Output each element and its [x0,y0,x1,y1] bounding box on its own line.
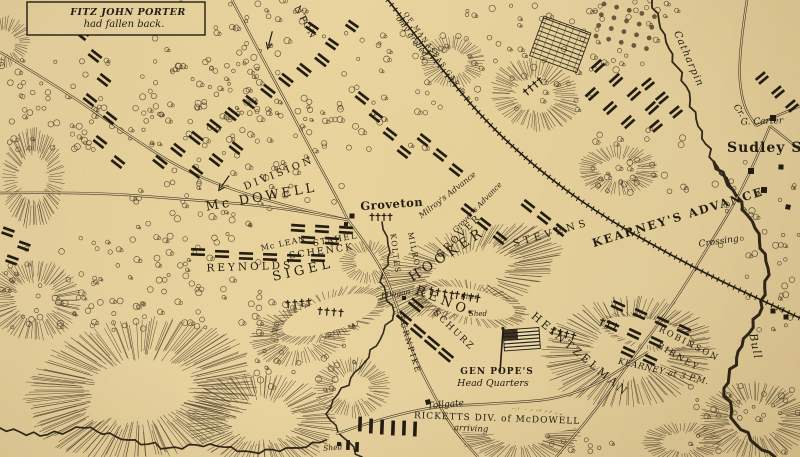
label-sudley-springs: Sudley Spr [727,140,800,156]
label-head-quarters: Head Quarters [456,378,529,389]
note-line-2: had fallen back. [84,19,165,30]
note-line-1: FITZ JOHN PORTER [69,7,186,18]
map-canvas: FITZ JOHN PORTERhad fallen back.NTONCath… [0,0,800,457]
label-shed-1: Shed [461,293,479,301]
battle-map-groveton: FITZ JOHN PORTERhad fallen back.NTONCath… [0,0,800,457]
label-g-carter-house: G. Carter [741,116,784,127]
note-fitz-john-porter: FITZ JOHN PORTERhad fallen back. [27,2,205,35]
label-shed-2: Shed [469,310,487,318]
paper-background [0,0,800,457]
label-arriving: arriving [454,423,489,435]
label-gen-popes: GEN POPE'S [460,367,533,377]
label-shed-3: Shed [323,442,343,453]
